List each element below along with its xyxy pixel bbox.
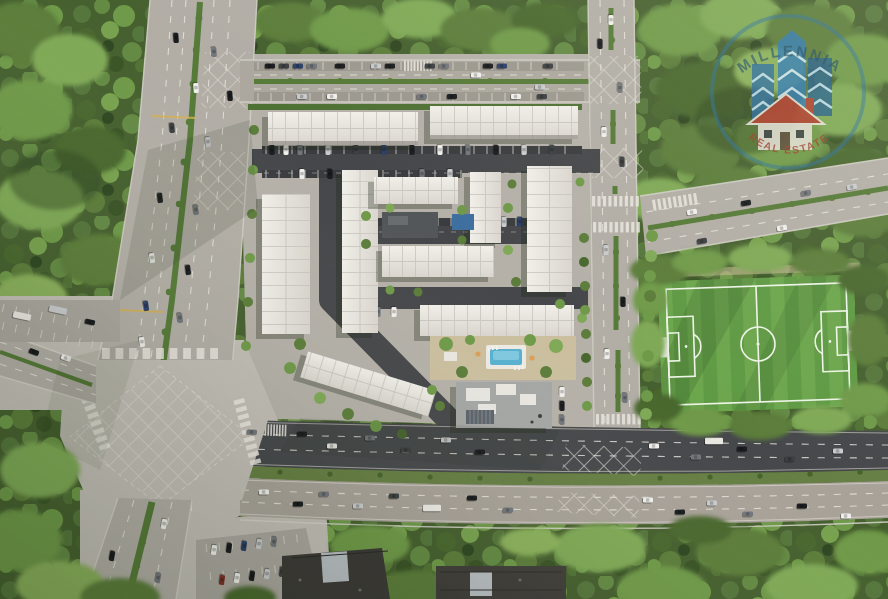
clubhouse-parking <box>559 386 565 425</box>
townhouse-row-e <box>368 177 458 209</box>
street-junction-box-north <box>588 56 642 104</box>
townhouse-row-b <box>424 106 578 144</box>
blue-shade-structure <box>452 214 474 230</box>
west-parking-area <box>0 300 120 342</box>
crosswalk-east-street-3 <box>596 414 641 424</box>
crosswalk-east-street-1 <box>592 196 639 206</box>
amenity-zone <box>430 334 576 380</box>
clubhouse <box>450 382 565 433</box>
townhouse-row-c <box>256 194 310 339</box>
pergola <box>444 352 457 361</box>
soccer-field <box>637 262 872 414</box>
north-street-parking-lane-top <box>254 62 584 71</box>
skylight-panel <box>470 572 492 596</box>
east-street <box>588 0 644 428</box>
townhouse-row-a <box>262 112 418 150</box>
crosswalk-east-street-2 <box>593 222 640 232</box>
townhouse-row-h <box>376 246 494 282</box>
warehouse-1 <box>282 548 390 599</box>
warehouse-2 <box>436 566 566 599</box>
townhouse-row-i <box>414 305 574 341</box>
townhouse-row-g <box>521 166 572 297</box>
townhouse-row-f <box>464 172 501 248</box>
umbrella <box>529 355 534 360</box>
aerial-masterplan-render: MILLENNIA REAL ESTATE <box>0 0 888 599</box>
scene-canvas: MILLENNIA REAL ESTATE <box>0 0 888 599</box>
umbrella <box>475 351 480 356</box>
north-street <box>240 60 640 110</box>
